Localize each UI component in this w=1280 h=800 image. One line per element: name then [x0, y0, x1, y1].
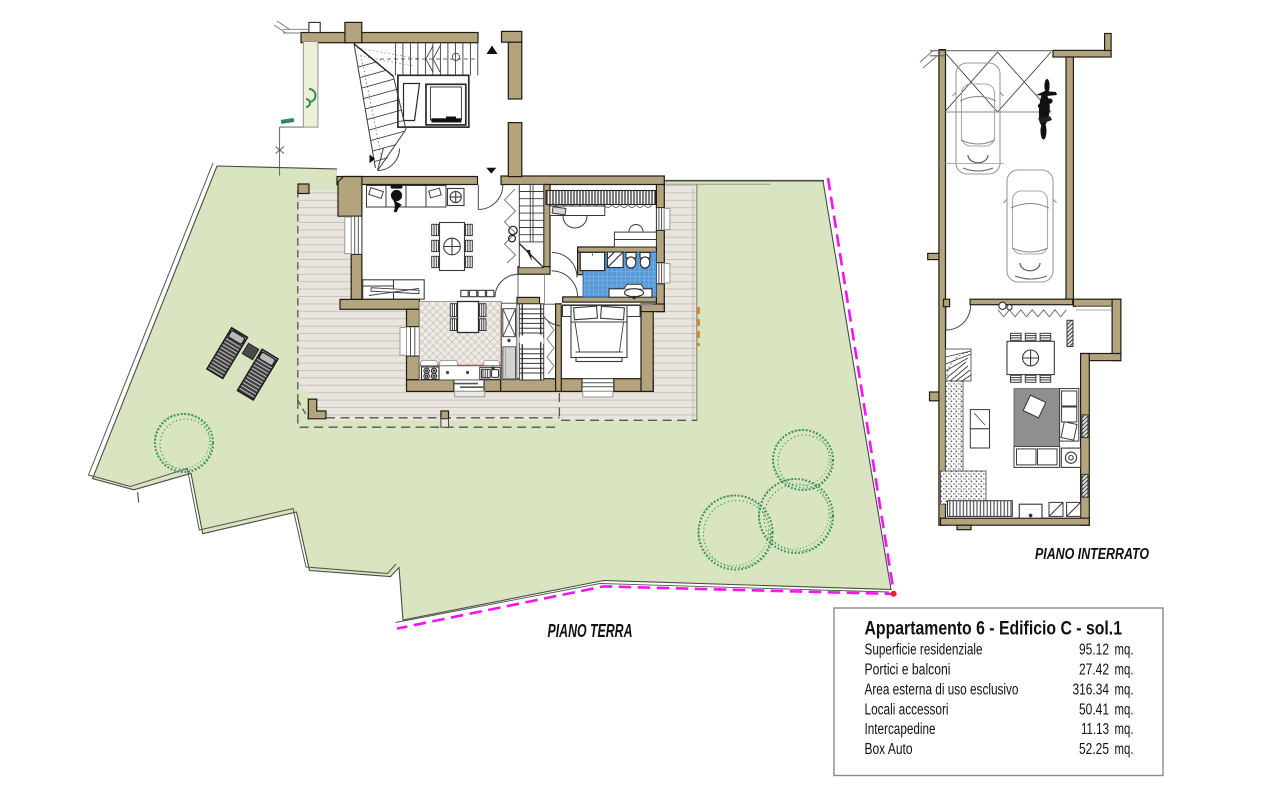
svg-text:Intercapedine: Intercapedine [865, 721, 936, 738]
svg-text:95.12: 95.12 [1079, 642, 1109, 659]
svg-text:27.42: 27.42 [1079, 662, 1109, 679]
svg-text:mq.: mq. [1115, 721, 1134, 738]
svg-text:mq.: mq. [1115, 681, 1134, 698]
svg-text:mq.: mq. [1115, 701, 1134, 718]
svg-text:PIANO TERRA: PIANO TERRA [548, 621, 633, 641]
svg-text:11.13: 11.13 [1081, 721, 1109, 738]
svg-text:mq.: mq. [1115, 662, 1134, 679]
svg-text:mq.: mq. [1115, 642, 1134, 659]
svg-text:Area esterna di uso esclusivo: Area esterna di uso esclusivo [865, 681, 1019, 698]
svg-text:52.25: 52.25 [1079, 741, 1109, 758]
svg-text:50.41: 50.41 [1079, 701, 1109, 718]
svg-text:Appartamento 6 - Edificio C -: Appartamento 6 - Edificio C - sol.1 [865, 618, 1123, 640]
svg-text:316.34: 316.34 [1073, 681, 1110, 698]
svg-text:mq.: mq. [1115, 741, 1134, 758]
svg-text:Superficie residenziale: Superficie residenziale [865, 642, 983, 659]
svg-text:Portici e balconi: Portici e balconi [865, 662, 951, 679]
svg-text:PIANO INTERRATO: PIANO INTERRATO [1035, 546, 1149, 563]
svg-text:Locali accessori: Locali accessori [865, 701, 949, 718]
svg-text:Box Auto: Box Auto [865, 741, 913, 758]
